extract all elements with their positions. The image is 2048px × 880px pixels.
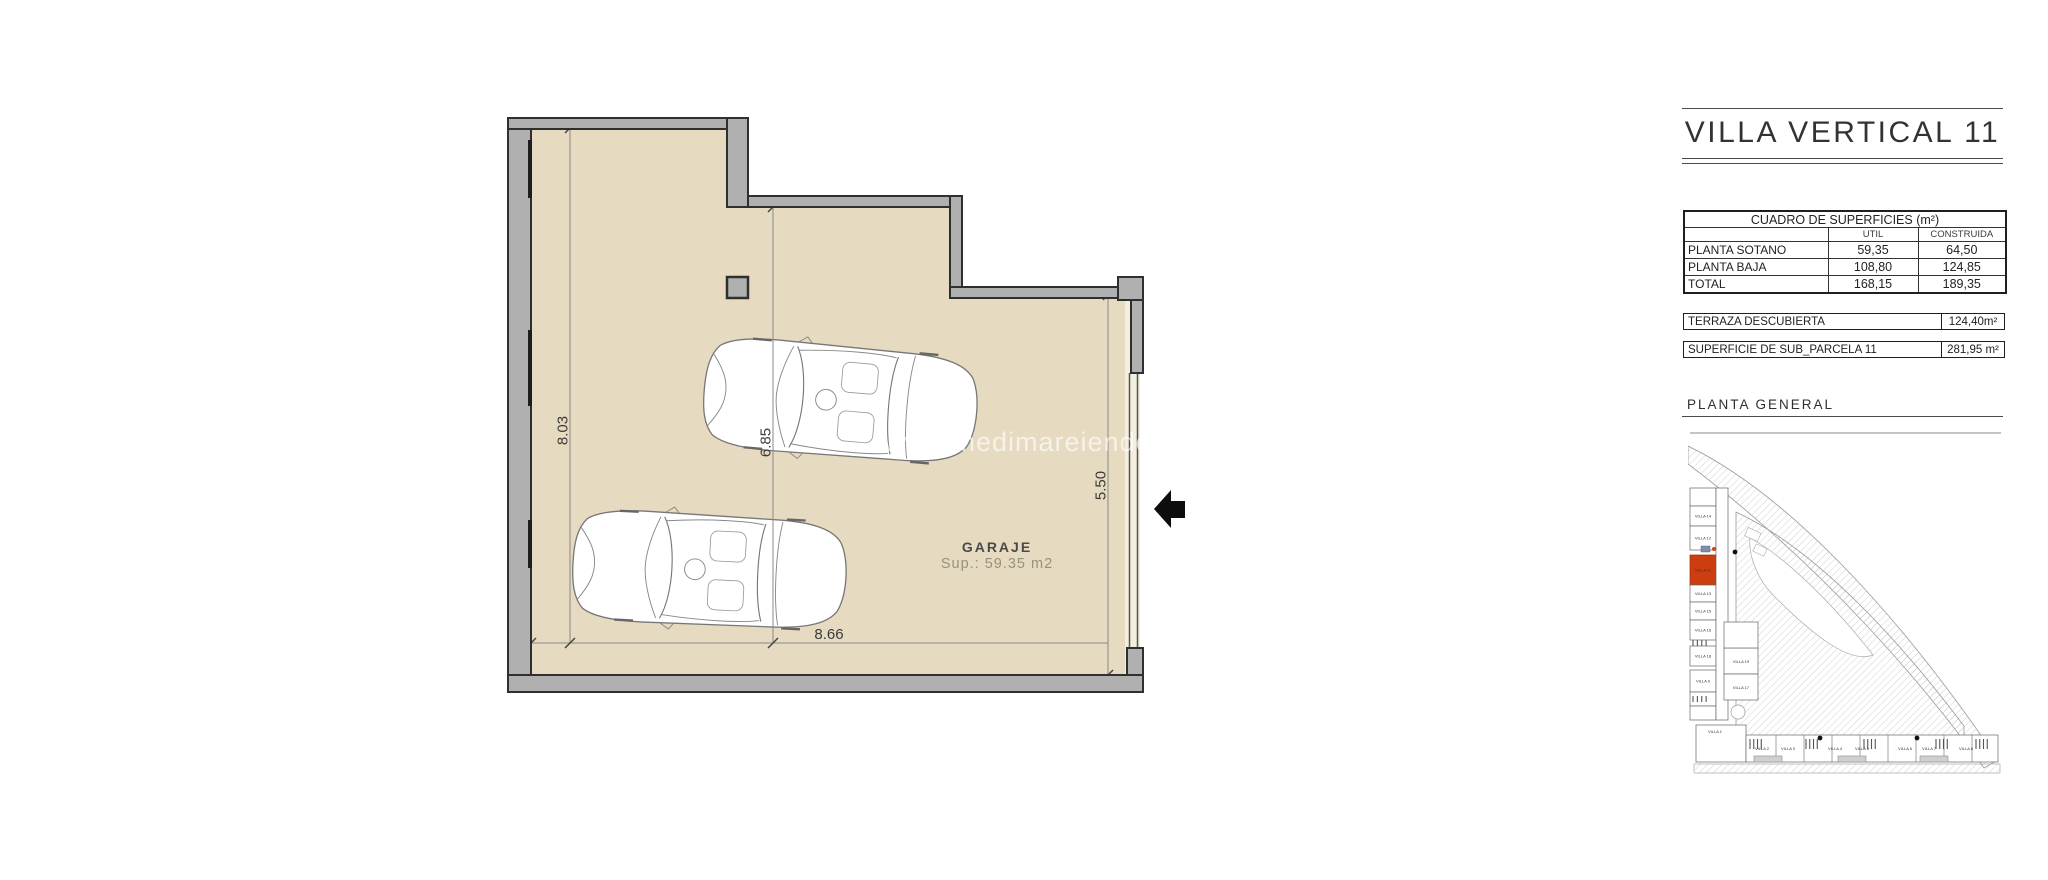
parcela-value: 281,95 m²	[1941, 342, 2004, 357]
site-dot	[1818, 736, 1823, 741]
table-row: TOTAL 168,15 189,35	[1684, 276, 2006, 294]
site-plan-title-rule	[1682, 416, 2003, 417]
site-dot	[1733, 550, 1738, 555]
dim-label-bottom: 8.66	[799, 626, 859, 643]
site-plan-title: PLANTA GENERAL	[1687, 397, 1834, 412]
site-tree	[1731, 705, 1745, 719]
dim-label-right: 5.50	[1093, 456, 1110, 516]
site-villa-box	[1724, 622, 1758, 648]
parcela-label: SUPERFICIE DE SUB_PARCELA 11	[1684, 344, 1941, 356]
site-villa-label: VILLA 12	[1695, 536, 1712, 541]
row-construida: 189,35	[1918, 276, 2006, 294]
title-underline-2	[1682, 163, 2003, 164]
site-villa-label: VILLA 17	[1733, 685, 1750, 690]
title-underline-1	[1682, 158, 2003, 159]
site-villa-label: VILLA 19	[1733, 659, 1750, 664]
site-villa-box	[1754, 756, 1782, 762]
site-villa-box	[1690, 692, 1716, 706]
site-glyph	[1712, 547, 1716, 551]
site-villa-box	[1690, 488, 1716, 506]
site-dot	[1915, 736, 1920, 741]
sheet-title: VILLA VERTICAL 11	[1682, 116, 2003, 150]
site-villa-label: VILLA 18	[1695, 654, 1712, 659]
site-villa-label: VILLA 6	[1898, 746, 1913, 751]
structural-column	[727, 277, 748, 298]
site-glyph	[1701, 546, 1710, 552]
site-villa-label: VILLA 4	[1828, 746, 1843, 751]
entrance-arrow-icon	[1154, 490, 1185, 528]
drawing-sheet: 8.03 6.85 5.50 8.66 www.medimareiendom.c…	[0, 0, 2048, 880]
table-row: PLANTA SOTANO 59,35 64,50	[1684, 242, 2006, 259]
surfaces-col-construida: CONSTRUIDA	[1918, 228, 2006, 242]
site-villa-label: VILLA 1	[1708, 729, 1723, 734]
site-villa-label: VILLA 9	[1696, 679, 1711, 684]
parcela-bar: SUPERFICIE DE SUB_PARCELA 11 281,95 m²	[1683, 341, 2005, 358]
row-construida: 64,50	[1918, 242, 2006, 259]
row-util: 59,35	[1828, 242, 1918, 259]
row-label: PLANTA SOTANO	[1684, 242, 1828, 259]
site-villa-label: VILLA 3	[1781, 746, 1796, 751]
site-villa-box	[1920, 756, 1948, 762]
site-villa-box	[1690, 706, 1716, 720]
terraza-label: TERRAZA DESCUBIERTA	[1684, 316, 1941, 328]
room-area-label: Sup.: 59.35 m2	[917, 556, 1077, 572]
site-villa-box	[1838, 756, 1866, 762]
dim-label-middle: 6.85	[758, 413, 775, 473]
site-villa-label: VILLA 13	[1695, 591, 1712, 596]
surfaces-col-util: UTIL	[1828, 228, 1918, 242]
site-bottom-strip	[1694, 764, 2000, 773]
row-util: 168,15	[1828, 276, 1918, 294]
surfaces-table-title: CUADRO DE SUPERFICIES (m²)	[1684, 211, 2006, 228]
site-inner-area	[1736, 512, 1964, 738]
row-construida: 124,85	[1918, 259, 2006, 276]
surfaces-table: CUADRO DE SUPERFICIES (m²) UTIL CONSTRUI…	[1683, 210, 2007, 294]
title-top-rule	[1682, 108, 2003, 109]
table-row: PLANTA BAJA 108,80 124,85	[1684, 259, 2006, 276]
site-villa-label: VILLA 8	[1959, 746, 1974, 751]
row-label: PLANTA BAJA	[1684, 259, 1828, 276]
site-villa-label: VILLA 14	[1695, 514, 1712, 519]
row-label: TOTAL	[1684, 276, 1828, 294]
room-label: GARAJE	[917, 539, 1077, 555]
site-villa-label: VILLA 11	[1695, 568, 1712, 573]
surfaces-col-empty	[1684, 228, 1828, 242]
site-villa-label: VILLA 16	[1695, 628, 1712, 633]
dim-label-left: 8.03	[555, 401, 572, 461]
row-util: 108,80	[1828, 259, 1918, 276]
watermark: www.medimareiendom.co	[884, 427, 1214, 458]
site-plan: VILLA 14VILLA 12VILLA 11VILLA 13VILLA 15…	[1688, 430, 2006, 776]
site-villa-label: VILLA 15	[1695, 609, 1712, 614]
site-villa-label: VILLA 7	[1922, 746, 1937, 751]
terraza-value: 124,40m²	[1941, 314, 2004, 329]
terraza-bar: TERRAZA DESCUBIERTA 124,40m²	[1683, 313, 2005, 330]
